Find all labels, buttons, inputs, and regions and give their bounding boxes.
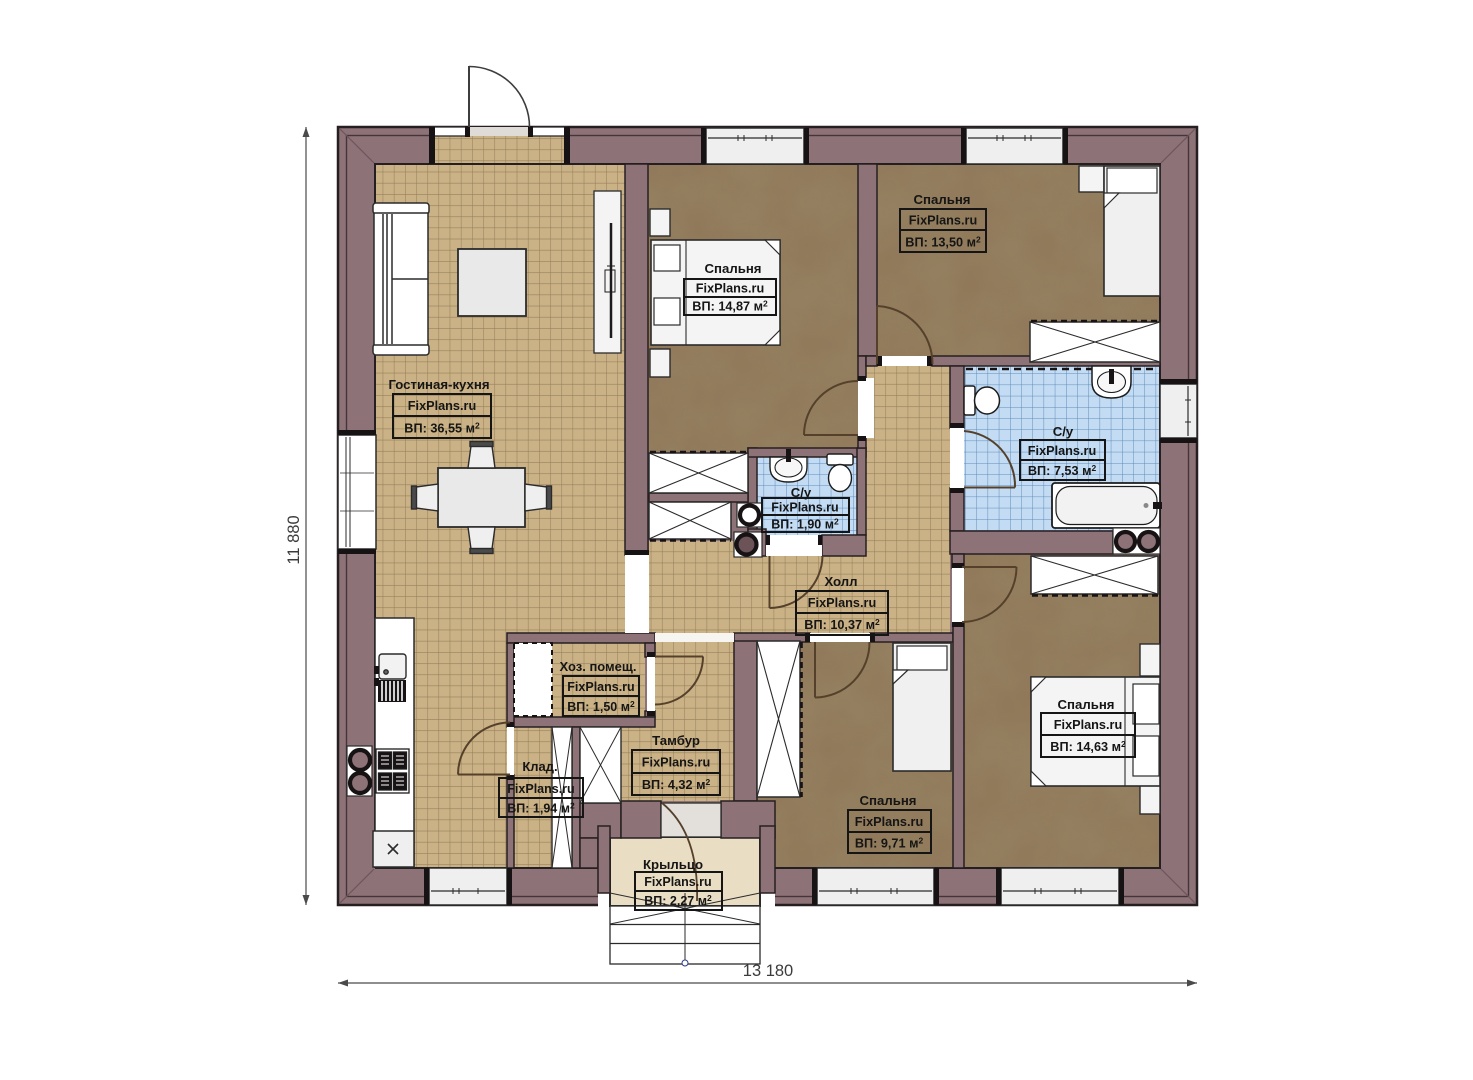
svg-text:FixPlans.ru: FixPlans.ru <box>808 596 876 610</box>
svg-text:Крыльцо: Крыльцо <box>643 857 703 872</box>
svg-text:ВП: 1,94 м2: ВП: 1,94 м2 <box>507 801 575 816</box>
svg-text:FixPlans.ru: FixPlans.ru <box>642 756 710 770</box>
svg-text:ВП: 14,87 м2: ВП: 14,87 м2 <box>692 299 768 314</box>
svg-text:Холл: Холл <box>824 574 857 589</box>
svg-text:Гостиная-кухня: Гостиная-кухня <box>388 377 489 392</box>
svg-text:ВП: 14,63 м2: ВП: 14,63 м2 <box>1050 739 1126 754</box>
svg-text:Клад.: Клад. <box>522 759 557 774</box>
svg-text:С/у: С/у <box>1053 424 1074 439</box>
svg-text:Хоз. помещ.: Хоз. помещ. <box>559 659 636 674</box>
svg-text:Спальня: Спальня <box>914 192 971 207</box>
svg-text:Тамбур: Тамбур <box>652 733 700 748</box>
svg-text:13 180: 13 180 <box>743 962 793 980</box>
svg-text:ВП: 36,55 м2: ВП: 36,55 м2 <box>404 421 480 436</box>
svg-text:FixPlans.ru: FixPlans.ru <box>507 782 574 796</box>
svg-text:FixPlans.ru: FixPlans.ru <box>567 680 634 694</box>
svg-text:FixPlans.ru: FixPlans.ru <box>696 282 764 296</box>
svg-text:FixPlans.ru: FixPlans.ru <box>408 399 476 413</box>
svg-text:Спальня: Спальня <box>705 261 762 276</box>
svg-text:ВП: 4,32 м2: ВП: 4,32 м2 <box>642 777 711 792</box>
svg-text:11 880: 11 880 <box>285 515 303 564</box>
svg-text:ВП: 1,50 м2: ВП: 1,50 м2 <box>567 699 635 714</box>
svg-text:Спальня: Спальня <box>1058 697 1115 712</box>
svg-text:ВП: 13,50 м2: ВП: 13,50 м2 <box>905 235 981 250</box>
svg-text:FixPlans.ru: FixPlans.ru <box>771 501 838 515</box>
svg-text:ВП: 7,53 м2: ВП: 7,53 м2 <box>1028 463 1097 478</box>
svg-text:ВП: 2,27 м2: ВП: 2,27 м2 <box>644 893 712 908</box>
svg-text:FixPlans.ru: FixPlans.ru <box>855 815 923 829</box>
svg-text:FixPlans.ru: FixPlans.ru <box>909 214 977 228</box>
svg-text:ВП: 10,37 м2: ВП: 10,37 м2 <box>804 617 880 632</box>
svg-text:FixPlans.ru: FixPlans.ru <box>1028 444 1096 458</box>
svg-text:FixPlans.ru: FixPlans.ru <box>1054 718 1122 732</box>
svg-text:ВП: 1,90 м2: ВП: 1,90 м2 <box>771 517 839 532</box>
svg-text:FixPlans.ru: FixPlans.ru <box>644 875 711 889</box>
svg-text:Спальня: Спальня <box>860 793 917 808</box>
svg-text:ВП: 9,71 м2: ВП: 9,71 м2 <box>855 836 924 851</box>
